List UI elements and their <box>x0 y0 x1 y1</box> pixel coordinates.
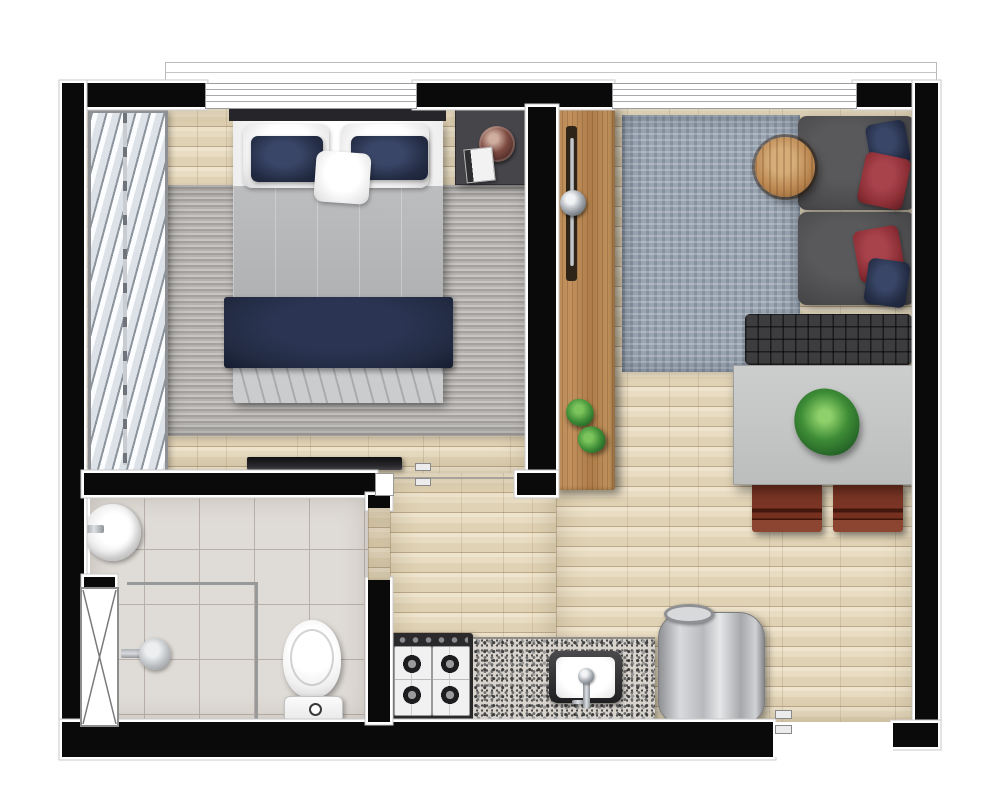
bathroom-door-threshold <box>368 508 390 580</box>
louvered-blinds-closet <box>88 110 168 474</box>
book-icon <box>463 147 495 184</box>
wall-bathroom-east-top <box>368 495 390 508</box>
shower-glass-vertical <box>255 582 258 722</box>
sink-faucet-stem <box>583 682 590 708</box>
bed-pillow-center <box>313 150 371 205</box>
round-wood-side-table <box>755 137 815 197</box>
sink-faucet-icon <box>578 668 594 684</box>
basin-faucet-icon <box>84 525 104 533</box>
bed-navy-runner <box>224 297 453 368</box>
door-knob-icon <box>560 190 586 216</box>
tufted-bench <box>745 314 912 365</box>
wall-bathroom-east-bottom <box>368 580 390 722</box>
bedroom-door-hinge-1 <box>415 463 431 471</box>
burner-icon-3 <box>439 653 461 675</box>
wall-bedroom-south-east <box>517 473 556 495</box>
shower-glass-horizontal <box>127 582 257 585</box>
wall-bathroom-step <box>84 577 115 587</box>
bedroom-window <box>205 83 417 109</box>
wall-bottom-right-corner <box>893 723 938 747</box>
wall-bedroom-right <box>528 107 556 490</box>
wall-right <box>915 83 938 747</box>
blinds-center-rail-icon <box>123 113 127 465</box>
shower-head-icon <box>139 638 171 670</box>
entry-door-hinge-1 <box>775 710 792 719</box>
washer-lid-icon <box>664 604 714 624</box>
ventilation-shaft <box>80 587 119 727</box>
bedroom-door-track <box>393 477 517 479</box>
sofa-pillow-navy-bottom <box>863 257 911 308</box>
bedroom-door-jamb <box>375 473 394 496</box>
bedroom-door-hinge-2 <box>415 478 431 486</box>
shaft-x-icon <box>82 589 117 725</box>
floor-plan <box>0 0 1000 791</box>
toilet-bowl <box>283 620 341 698</box>
bed-foot-pleats <box>233 368 443 403</box>
wall-tv <box>247 457 402 470</box>
dining-chair-right <box>833 483 903 532</box>
dining-chair-left <box>752 483 822 532</box>
window-sill-band <box>165 62 937 85</box>
wall-bedroom-south <box>84 473 375 495</box>
stainless-washer <box>658 612 765 724</box>
burner-icon-1 <box>401 653 423 675</box>
living-room-window <box>612 83 857 109</box>
wall-top-middle <box>415 83 612 107</box>
burner-icon-4 <box>439 684 461 706</box>
entry-door-hinge-2 <box>775 725 792 734</box>
burner-icon-2 <box>401 684 423 706</box>
bed-pillow-navy-left <box>251 136 323 182</box>
wall-bottom <box>62 722 773 757</box>
cooktop-knobs-icon <box>396 636 468 644</box>
sink-faucet-handle <box>572 700 584 704</box>
toilet-flush-button-icon <box>309 703 322 716</box>
